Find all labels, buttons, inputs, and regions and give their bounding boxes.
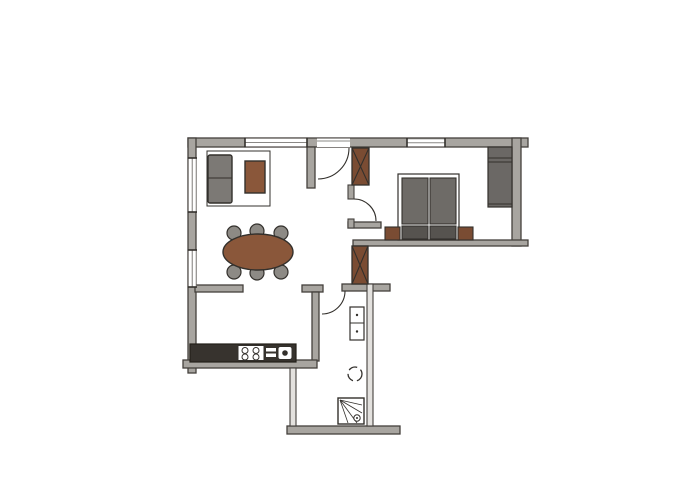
wall-bath-north [342,284,390,291]
sink-drainer [266,354,276,358]
bed-mattress-right [430,178,456,224]
entry-door-swing [318,148,349,179]
wardrobe [488,147,512,207]
washer-knob [356,314,358,316]
shower-drain-dot [356,417,358,419]
wall-top [188,138,528,147]
floor-plan-canvas [0,0,700,500]
stove-burner [242,348,248,354]
bathroom-door-swing [322,291,345,314]
wall-kitchen-east [312,292,319,361]
bedroom-door-swing [354,199,376,221]
bed-mattress-left [402,178,428,224]
wall-entry-west [307,147,315,188]
wall-living-south-west [195,285,243,292]
stove-burner [253,348,259,354]
wall-bedroom-door-jamb-south [348,219,354,228]
nightstand-left [385,227,400,240]
wall-exterior-bottom [287,426,400,434]
sink-faucet [282,350,288,356]
stove-burner [253,354,259,360]
nightstand-right [458,227,473,240]
stove-burner [242,354,248,360]
floor-plan-page [0,0,700,500]
bed-pillow-left [402,226,428,239]
dining-table [223,234,293,270]
wall-bath-east-thin [367,284,373,426]
wall-corridor-west-thin [290,368,296,426]
wall-living-south-mid [302,285,323,292]
coffee-table [245,161,265,193]
sofa [208,155,232,203]
bed-pillow-right [430,226,456,239]
wall-bedroom-door-jamb-north [348,185,354,199]
sink-drainer [266,348,276,352]
washer-knob [356,330,358,332]
toilet [348,367,362,381]
entry-door-opening [317,139,350,148]
wall-right [512,138,521,246]
wall-bedroom-south [353,240,528,246]
